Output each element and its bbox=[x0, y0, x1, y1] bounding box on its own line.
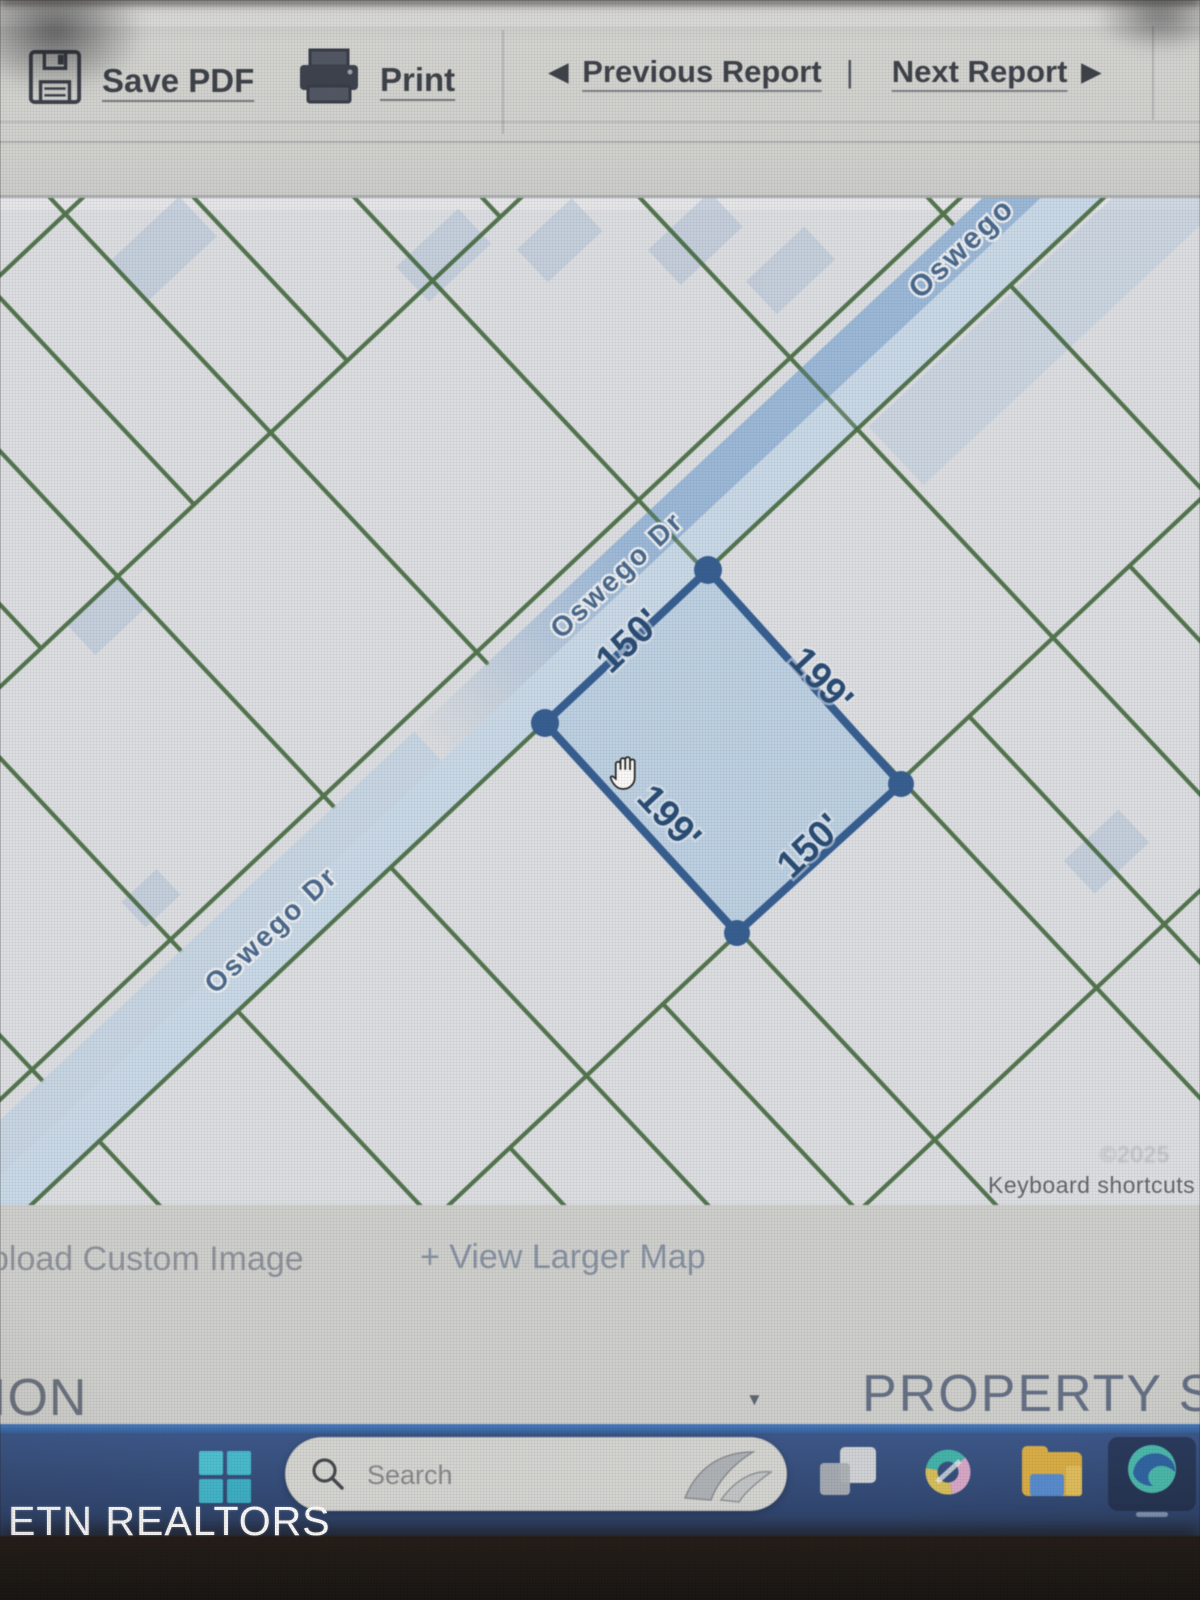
taskbar-search-box[interactable] bbox=[285, 1437, 787, 1511]
toolbar-highlight-band bbox=[0, 6, 1200, 26]
upload-custom-image-link[interactable]: pload Custom Image bbox=[0, 1240, 304, 1279]
file-explorer-folder-icon[interactable] bbox=[1022, 1446, 1082, 1503]
taskbar-accent-line bbox=[0, 1424, 1200, 1433]
next-triangle-icon[interactable]: ▶ bbox=[1081, 57, 1100, 87]
keyboard-shortcuts-link[interactable]: Keyboard shortcuts bbox=[988, 1172, 1195, 1199]
view-larger-map-link[interactable]: + View Larger Map bbox=[420, 1238, 706, 1277]
report-navigation: ◀ Previous Report | Next Report ▶ bbox=[549, 54, 1101, 90]
search-decoration-feather-icon bbox=[677, 1442, 777, 1511]
print-label: Print bbox=[380, 61, 455, 99]
edge-active-indicator bbox=[1136, 1512, 1168, 1517]
print-button[interactable]: Print bbox=[298, 48, 455, 112]
previous-report-link[interactable]: Previous Report bbox=[582, 54, 821, 90]
toolbar-vertical-divider bbox=[502, 30, 504, 134]
map-copyright-text: ©2025 bbox=[1100, 1142, 1170, 1168]
edge-browser-icon[interactable] bbox=[1125, 1442, 1179, 1501]
parcel-corner-dot bbox=[694, 556, 722, 584]
parcel-corner-dot bbox=[724, 920, 750, 946]
copilot-ring-icon[interactable] bbox=[920, 1444, 976, 1505]
dropdown-caret-icon[interactable]: ▼ bbox=[746, 1390, 763, 1410]
screen-photo: Save PDF Print ◀ Previous Report | Nex bbox=[0, 0, 1200, 1600]
report-toolbar: Save PDF Print ◀ Previous Report | Nex bbox=[0, 0, 1200, 198]
save-pdf-label: Save PDF bbox=[102, 62, 254, 100]
floppy-disk-icon bbox=[28, 48, 82, 114]
next-report-link[interactable]: Next Report bbox=[892, 54, 1068, 90]
search-input[interactable] bbox=[365, 1437, 619, 1513]
section-title-property: PROPERTY S bbox=[862, 1364, 1200, 1424]
toolbar-divider bbox=[0, 141, 1200, 143]
toolbar-vertical-divider bbox=[1152, 26, 1154, 120]
save-pdf-button[interactable]: Save PDF bbox=[28, 48, 254, 114]
parcel-corner-dot bbox=[531, 709, 559, 737]
parcel-map[interactable]: Oswego Dr Oswego Dr Oswego 150' 199' 199… bbox=[0, 198, 1200, 1205]
watermark-text: ETN REALTORS bbox=[8, 1498, 331, 1545]
monitor-bezel bbox=[0, 1536, 1200, 1600]
parcel-corner-dot bbox=[888, 771, 914, 797]
printer-icon bbox=[298, 48, 360, 112]
previous-triangle-icon[interactable]: ◀ bbox=[549, 57, 568, 87]
section-title-left-truncated: ION bbox=[0, 1368, 87, 1428]
toolbar-divider bbox=[0, 121, 1200, 123]
app-windows-icon[interactable] bbox=[820, 1447, 878, 1506]
nav-divider: | bbox=[846, 54, 854, 90]
windows-start-icon[interactable] bbox=[199, 1451, 251, 1503]
search-icon bbox=[311, 1457, 345, 1496]
